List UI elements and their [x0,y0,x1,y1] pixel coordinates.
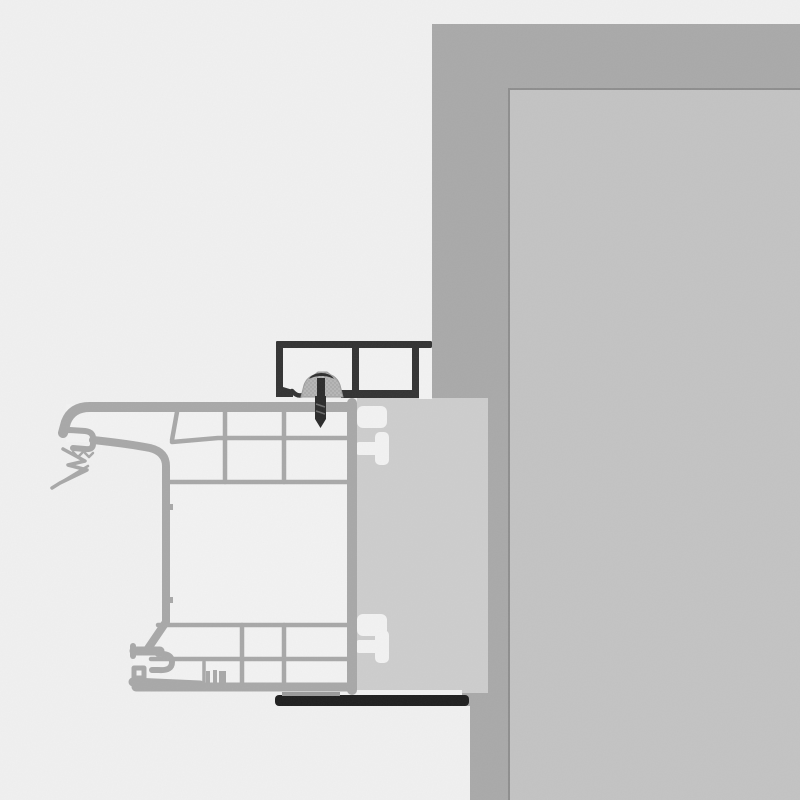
cover-left-wall [276,341,283,389]
wall-opening [508,88,800,800]
wall-opening-face [508,88,800,800]
profile-body [160,402,354,692]
serration [213,670,217,683]
cover-divider [352,348,359,393]
mounting-panel [356,398,488,693]
cover-top-bar [276,341,432,348]
cover-divider [412,348,419,398]
cover-chamber [419,348,432,399]
screw-shank [317,378,325,398]
cover-chamber [359,348,412,392]
serration [206,671,210,683]
chamber-nub [166,504,173,510]
exterior-cover-profile [276,341,432,399]
base-trim-bar [275,695,469,706]
t-slot-channel [357,406,387,428]
serration [219,671,226,683]
diagram-stage [0,0,800,800]
cover-bottom-bar [341,390,413,398]
cross-section-diagram [0,0,800,800]
chamber-nub [166,597,173,603]
